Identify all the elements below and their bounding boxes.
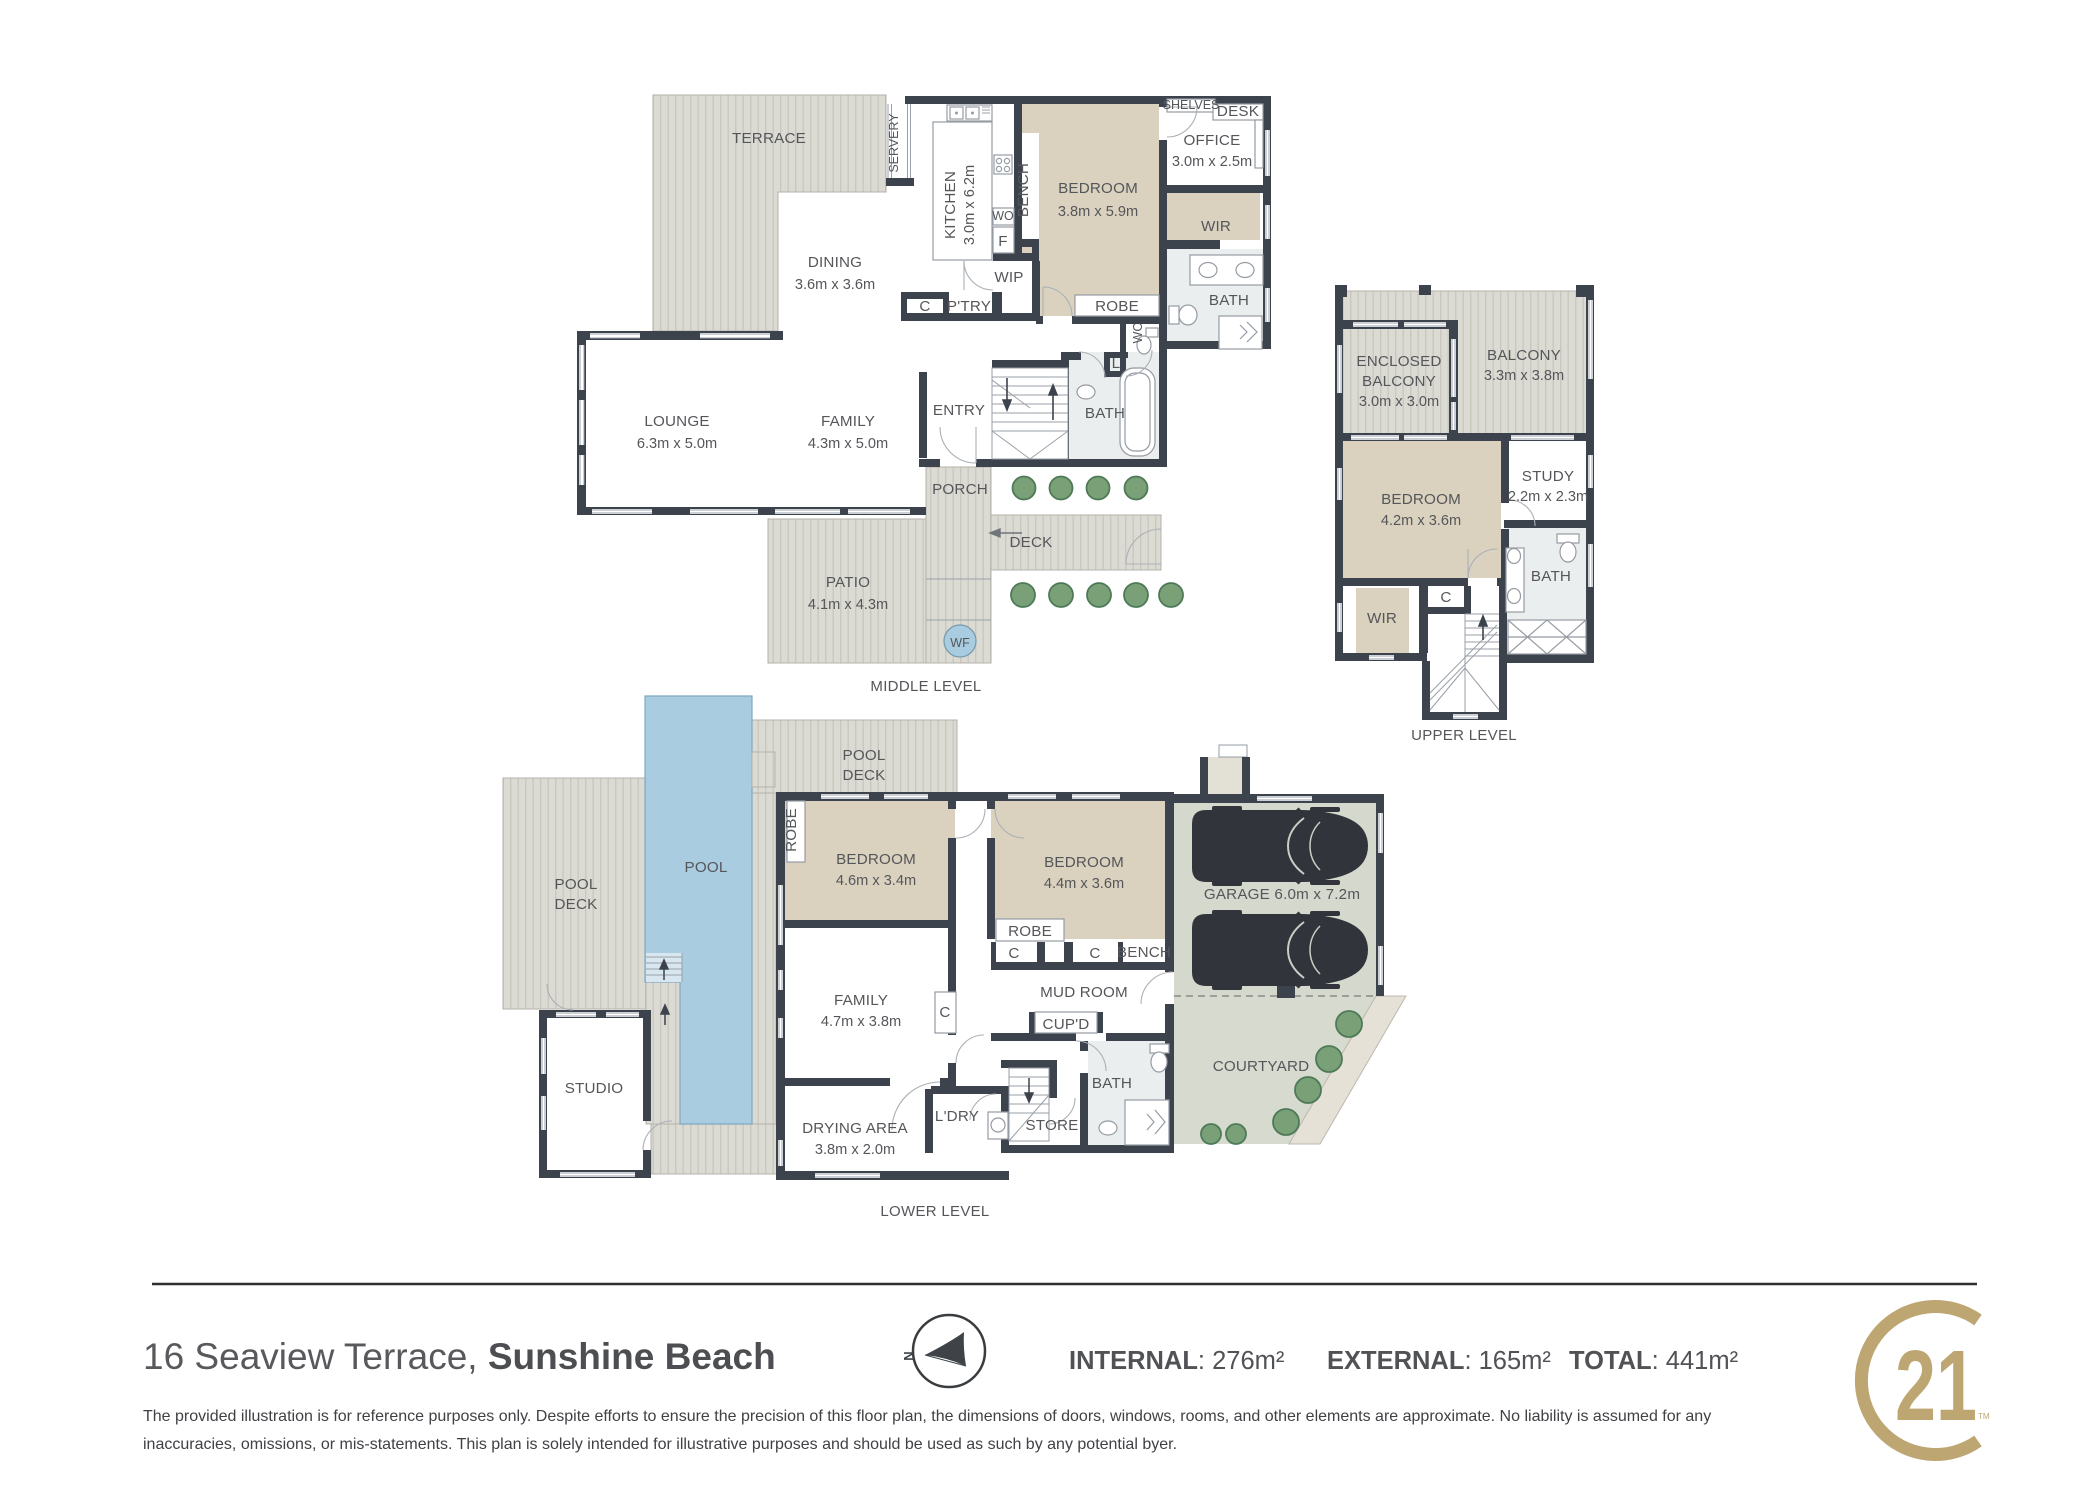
svg-text:DECK: DECK	[843, 767, 886, 784]
svg-text:BENCH: BENCH	[1015, 163, 1032, 217]
svg-text:SERVERY: SERVERY	[887, 113, 901, 173]
svg-text:2.2m x 2.3m: 2.2m x 2.3m	[1508, 489, 1588, 505]
svg-text:STUDIO: STUDIO	[565, 1080, 624, 1097]
svg-text:3.3m x 3.8m: 3.3m x 3.8m	[1484, 368, 1564, 384]
svg-text:DESK: DESK	[1217, 103, 1259, 120]
svg-text:BALCONY: BALCONY	[1487, 347, 1561, 364]
svg-text:WIR: WIR	[1201, 218, 1231, 235]
svg-text:DINING: DINING	[808, 254, 862, 271]
svg-text:DRYING AREA: DRYING AREA	[802, 1120, 908, 1137]
svg-text:N: N	[901, 1351, 916, 1360]
svg-text:POOL: POOL	[842, 747, 885, 764]
svg-text:C: C	[919, 298, 930, 315]
svg-text:16 Seaview Terrace, Sunshine B: 16 Seaview Terrace, Sunshine Beach	[143, 1336, 776, 1377]
svg-text:TM: TM	[1978, 1412, 1990, 1421]
svg-text:STUDY: STUDY	[1522, 468, 1574, 485]
svg-text:EXTERNAL: 165m²: EXTERNAL: 165m²	[1327, 1347, 1551, 1375]
svg-text:LOWER LEVEL: LOWER LEVEL	[880, 1203, 989, 1220]
svg-text:BALCONY: BALCONY	[1362, 373, 1436, 390]
svg-text:F: F	[998, 233, 1007, 250]
svg-text:3.0m x 6.2m: 3.0m x 6.2m	[962, 165, 978, 245]
svg-text:CUP'D: CUP'D	[1043, 1016, 1090, 1033]
svg-text:WO: WO	[992, 209, 1014, 223]
svg-text:POOL: POOL	[684, 859, 727, 876]
svg-text:4.7m x 3.8m: 4.7m x 3.8m	[821, 1014, 901, 1030]
svg-text:ROBE: ROBE	[783, 808, 800, 852]
svg-text:FAMILY: FAMILY	[821, 413, 875, 430]
svg-text:6.3m x 5.0m: 6.3m x 5.0m	[637, 436, 717, 452]
svg-text:PATIO: PATIO	[826, 574, 870, 591]
svg-text:21: 21	[1895, 1330, 1977, 1442]
svg-text:BATH: BATH	[1085, 405, 1125, 422]
svg-text:OFFICE: OFFICE	[1184, 132, 1241, 149]
svg-text:3.8m x 5.9m: 3.8m x 5.9m	[1058, 204, 1138, 220]
svg-text:UPPER LEVEL: UPPER LEVEL	[1411, 727, 1517, 744]
svg-text:inaccuracies, omissions, or mi: inaccuracies, omissions, or mis-statemen…	[143, 1436, 1177, 1453]
svg-text:WC: WC	[1131, 323, 1145, 344]
svg-text:L: L	[1112, 355, 1121, 372]
svg-text:WF: WF	[950, 636, 970, 650]
svg-text:BATH: BATH	[1209, 292, 1249, 309]
svg-text:WIR: WIR	[1367, 610, 1397, 627]
svg-text:The provided illustration is f: The provided illustration is for referen…	[143, 1408, 1711, 1425]
svg-text:4.6m x 3.4m: 4.6m x 3.4m	[836, 873, 916, 889]
svg-text:MIDDLE LEVEL: MIDDLE LEVEL	[870, 678, 981, 695]
svg-text:4.4m x 3.6m: 4.4m x 3.6m	[1044, 876, 1124, 892]
svg-text:INTERNAL: 276m²: INTERNAL: 276m²	[1069, 1347, 1284, 1375]
svg-text:4.2m x 3.6m: 4.2m x 3.6m	[1381, 513, 1461, 529]
svg-text:C: C	[939, 1004, 950, 1021]
svg-text:4.1m x 4.3m: 4.1m x 4.3m	[808, 597, 888, 613]
svg-text:DECK: DECK	[555, 896, 598, 913]
svg-text:PORCH: PORCH	[932, 481, 988, 498]
svg-text:BEDROOM: BEDROOM	[1044, 854, 1124, 871]
svg-text:BENCH: BENCH	[1117, 944, 1171, 961]
svg-text:3.6m x 3.6m: 3.6m x 3.6m	[795, 277, 875, 293]
svg-text:ROBE: ROBE	[1008, 923, 1052, 940]
svg-text:TOTAL: 441m²: TOTAL: 441m²	[1569, 1347, 1738, 1375]
svg-text:ROBE: ROBE	[1095, 298, 1139, 315]
svg-text:COURTYARD: COURTYARD	[1213, 1058, 1310, 1075]
svg-text:ENTRY: ENTRY	[933, 402, 985, 419]
svg-text:DECK: DECK	[1010, 534, 1053, 551]
svg-text:WIP: WIP	[994, 269, 1023, 286]
svg-text:SHELVES: SHELVES	[1163, 98, 1220, 112]
svg-text:P'TRY: P'TRY	[947, 298, 991, 315]
svg-text:MUD ROOM: MUD ROOM	[1040, 984, 1128, 1001]
svg-text:BATH: BATH	[1531, 568, 1571, 585]
svg-text:FAMILY: FAMILY	[834, 992, 888, 1009]
svg-text:BATH: BATH	[1092, 1075, 1132, 1092]
svg-text:3.0m x 3.0m: 3.0m x 3.0m	[1359, 394, 1439, 410]
svg-text:C: C	[1440, 589, 1451, 606]
svg-text:TERRACE: TERRACE	[732, 130, 806, 147]
svg-text:C: C	[1008, 945, 1019, 962]
svg-text:LOUNGE: LOUNGE	[644, 413, 709, 430]
svg-text:STORE: STORE	[1025, 1117, 1078, 1134]
svg-text:GARAGE 6.0m x 7.2m: GARAGE 6.0m x 7.2m	[1204, 886, 1360, 903]
svg-text:4.3m x 5.0m: 4.3m x 5.0m	[808, 436, 888, 452]
svg-text:L'DRY: L'DRY	[935, 1108, 979, 1125]
svg-text:3.0m x 2.5m: 3.0m x 2.5m	[1172, 154, 1252, 170]
svg-text:POOL: POOL	[554, 876, 597, 893]
svg-text:KITCHEN: KITCHEN	[942, 171, 959, 239]
svg-text:ENCLOSED: ENCLOSED	[1356, 353, 1441, 370]
svg-text:BEDROOM: BEDROOM	[1058, 180, 1138, 197]
svg-text:BEDROOM: BEDROOM	[1381, 491, 1461, 508]
svg-text:3.8m x 2.0m: 3.8m x 2.0m	[815, 1142, 895, 1158]
svg-text:BEDROOM: BEDROOM	[836, 851, 916, 868]
svg-text:C: C	[1089, 945, 1100, 962]
